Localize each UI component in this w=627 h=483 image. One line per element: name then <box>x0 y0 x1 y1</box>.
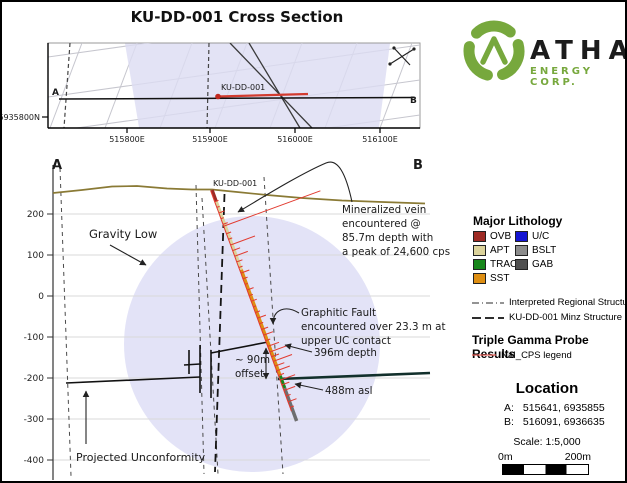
fault-note: upper UC contact <box>301 335 391 347</box>
lithology-item: TRAC <box>473 257 515 271</box>
cross-section-figure: 6935800N 515800E 515900E 516000E 516100E… <box>2 2 472 483</box>
scalebar <box>502 464 589 475</box>
lithology-swatch <box>515 245 528 256</box>
lithology-item: BSLT <box>515 243 565 257</box>
asl-488-label: 488m asl <box>325 385 373 397</box>
location-row-b: B: 516091, 6936635 <box>504 416 605 428</box>
map-a-label: A <box>52 88 59 98</box>
lithology-swatch <box>473 231 486 242</box>
elev-tick: -200 <box>24 374 45 384</box>
scalebar-labels: 0m 200m <box>498 451 591 463</box>
elev-tick: -100 <box>24 333 45 343</box>
structure-legend-row: Interpreted Regional Structure <box>472 295 627 310</box>
lithology-item: GAB <box>515 257 565 271</box>
offset-label: ~ 90m <box>235 354 270 366</box>
elev-tick: -300 <box>24 415 45 425</box>
elev-tick: 100 <box>27 251 44 261</box>
map-easting-tick: 515800E <box>109 135 145 144</box>
plan-map: 6935800N 515800E 515900E 516000E 516100E… <box>2 5 464 167</box>
dash-dot-line-icon <box>472 299 504 307</box>
projected-unconformity-label: Projected Unconformity <box>76 451 206 464</box>
vein-note: encountered @ <box>342 218 421 230</box>
map-hole-label: KU-DD-001 <box>221 83 265 92</box>
figure-frame: KU-DD-001 Cross Section <box>0 0 627 483</box>
lithology-swatch <box>473 273 486 284</box>
lithology-swatch <box>515 231 528 242</box>
lithology-item: APT <box>473 243 515 257</box>
company-name: ATHA <box>530 38 625 64</box>
lithology-item: SST <box>473 271 515 285</box>
section-hole-label: KU-DD-001 <box>213 179 257 188</box>
vein-note: Mineralized vein <box>342 204 426 216</box>
section-axis-ticks <box>47 214 53 460</box>
map-easting-tick: 515900E <box>192 135 228 144</box>
section-a-label: A <box>52 158 62 173</box>
elev-tick: 0 <box>38 292 44 302</box>
map-b-label: B <box>410 96 417 106</box>
gravity-low-label: Gravity Low <box>89 227 157 241</box>
fault-note: encountered over 23.3 m at <box>301 321 445 333</box>
logo-text: ATHA ENERGY CORP. <box>530 38 625 88</box>
offset-label: offset <box>235 368 264 380</box>
gamma-legend-row: NaI_CPS legend <box>472 349 572 361</box>
section-b-label: B <box>413 158 423 173</box>
company-tagline: ENERGY CORP. <box>530 66 625 88</box>
lithology-swatch <box>515 259 528 270</box>
elev-tick: -400 <box>24 456 45 466</box>
red-line-icon <box>472 352 496 358</box>
scale-label: Scale: 1:5,000 <box>495 436 599 448</box>
atha-logo-icon <box>461 18 527 84</box>
topography-line <box>53 186 425 204</box>
structure-legend-row: KU-DD-001 Minz Structure <box>472 310 627 325</box>
lithology-item: U/C <box>515 229 565 243</box>
fault-note: Graphitic Fault <box>301 307 376 319</box>
vein-note: 85.7m depth with <box>342 232 433 244</box>
map-easting-tick: 516100E <box>362 135 398 144</box>
location-row-a: A: 515641, 6935855 <box>504 402 605 414</box>
elev-tick: 200 <box>27 210 44 220</box>
lithology-swatch <box>473 259 486 270</box>
vein-note: a peak of 24,600 cps <box>342 246 450 258</box>
location-title: Location <box>495 380 599 397</box>
lithology-legend-title: Major Lithology <box>473 214 562 228</box>
structure-legend: Interpreted Regional Structure KU-DD-001… <box>472 295 627 325</box>
lithology-swatch <box>473 245 486 256</box>
lithology-item: OVB <box>473 229 515 243</box>
map-northing-label: 6935800N <box>2 113 40 122</box>
dash-line-icon <box>472 314 504 322</box>
cross-section: 200 100 0 -100 -200 -300 -400 <box>24 158 451 480</box>
map-easting-tick: 516000E <box>277 135 313 144</box>
map-drill-collar <box>215 94 221 100</box>
lithology-legend: OVB U/C APT BSLT TRAC GAB SST <box>473 229 565 285</box>
depth-396-label: 396m depth <box>314 347 377 359</box>
